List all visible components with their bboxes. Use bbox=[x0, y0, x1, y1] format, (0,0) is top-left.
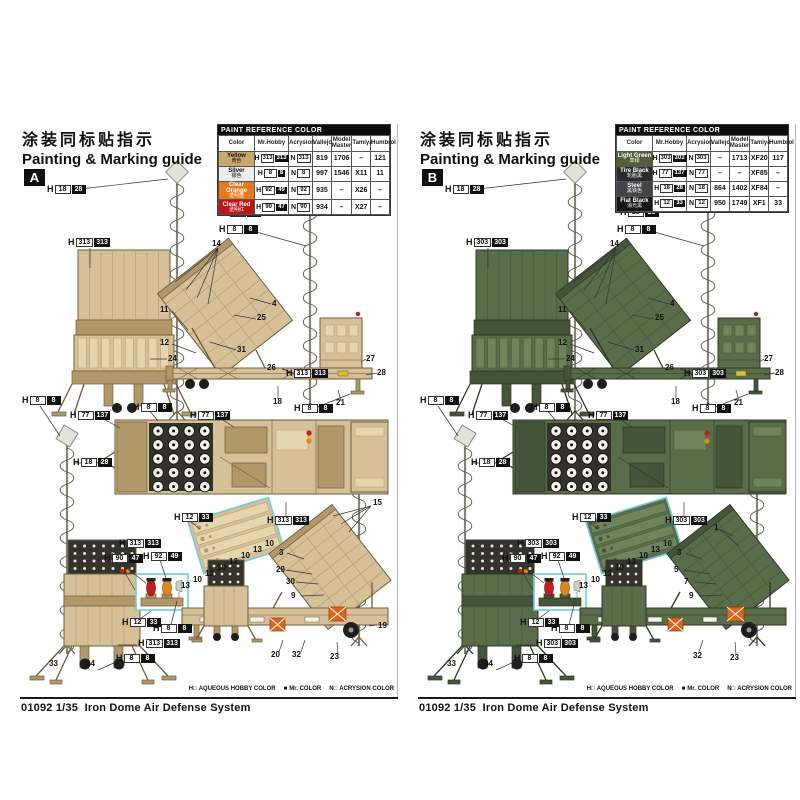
tamiya-cell: XF20 bbox=[750, 151, 769, 166]
title-english: Painting & Marking guide bbox=[420, 151, 600, 168]
paint-row: Flat Black消光黑 H1233 N12 950 1749 XF1 33 bbox=[617, 196, 788, 211]
model-master-cell: – bbox=[331, 200, 352, 215]
tamiya-cell: X26 bbox=[352, 181, 371, 200]
beacon-red-icon bbox=[704, 430, 709, 435]
humbrol-cell: 121 bbox=[371, 151, 390, 166]
mr-hobby-cell: H9249 bbox=[254, 181, 288, 200]
paint-callout: H303303 bbox=[517, 538, 559, 548]
mr-hobby-cell: H88 bbox=[254, 166, 288, 181]
product-scale: 1/35 bbox=[454, 702, 476, 714]
part-number-callout: 27 bbox=[366, 354, 375, 363]
paint-row: Steel黑铁色 H1828 N18 864 1402 XF84 – bbox=[617, 181, 788, 196]
acrysion-cell: N77 bbox=[687, 166, 711, 181]
part-number-callout: 28 bbox=[377, 368, 386, 377]
part-number-callout: 34 bbox=[86, 659, 95, 668]
paint-callout: H88 bbox=[219, 224, 258, 234]
clear-red-lamp-icon bbox=[545, 580, 554, 596]
paint-callout: H313313 bbox=[68, 237, 110, 247]
part-number-callout: 23 bbox=[330, 652, 339, 661]
beacon-red-icon bbox=[306, 430, 311, 435]
product-name: Iron Dome Air Defense System bbox=[483, 702, 649, 714]
humbrol-cell: – bbox=[769, 181, 788, 196]
column-header: Color bbox=[617, 136, 653, 152]
legend-label: AQUEOUS HOBBY COLOR bbox=[199, 686, 276, 692]
paint-callout: H88 bbox=[294, 403, 333, 413]
tamiya-cell: – bbox=[352, 151, 371, 166]
model-master-cell: 1713 bbox=[729, 151, 750, 166]
product-title: 01092 1/35 Iron Dome Air Defense System bbox=[21, 702, 251, 714]
panel-letter: A bbox=[24, 169, 45, 186]
humbrol-cell: 11 bbox=[371, 166, 390, 181]
part-number-callout: 1 bbox=[714, 523, 718, 532]
part-number-callout: 13 bbox=[651, 545, 660, 554]
legend-label: Mr. COLOR bbox=[687, 686, 719, 692]
orange-marker-board-icon bbox=[270, 618, 285, 631]
vallejo-cell: 935 bbox=[313, 181, 332, 200]
paint-callout: H1828 bbox=[445, 184, 484, 194]
product-code: 01092 bbox=[419, 702, 451, 714]
part-number-callout: 13 bbox=[229, 557, 238, 566]
legend-label: ACRYSION COLOR bbox=[339, 686, 394, 692]
panel-title: 涂装同标贴指示 Painting & Marking guide bbox=[420, 126, 600, 168]
title-chinese: 涂装同标贴指示 bbox=[420, 126, 600, 150]
acrysion-cell: N303 bbox=[687, 151, 711, 166]
part-number-callout: 31 bbox=[635, 345, 644, 354]
legend-key: N□ bbox=[329, 686, 337, 692]
paint-row: Clear Orange透明橙 H9249 N92 935 – X26 – bbox=[219, 181, 390, 200]
paint-callout: H88 bbox=[692, 403, 731, 413]
part-number-callout: 13 bbox=[579, 581, 588, 590]
paint-callout: H77137 bbox=[588, 410, 628, 420]
paint-callout: H88 bbox=[617, 224, 656, 234]
truck-top-view bbox=[497, 420, 787, 494]
paint-callout: H9249 bbox=[143, 551, 182, 561]
part-number-callout: 4 bbox=[272, 299, 276, 308]
paint-callout: H9249 bbox=[541, 551, 580, 561]
part-number-callout: 13 bbox=[181, 581, 190, 590]
part-number-callout: 12 bbox=[558, 338, 567, 347]
beacon-orange-icon bbox=[704, 438, 709, 443]
paint-callout: H88 bbox=[551, 623, 590, 633]
guide-panel-b: 涂装同标贴指示 Painting & Marking guide B PAINT… bbox=[418, 122, 796, 722]
part-number-callout: 10 bbox=[639, 551, 648, 560]
acrysion-cell: N12 bbox=[687, 196, 711, 211]
column-header: Color bbox=[219, 136, 255, 152]
column-header: Acrysion bbox=[289, 136, 313, 152]
paint-row: Tire Black轮胎黑 H77137 N77 – – XF85 – bbox=[617, 166, 788, 181]
paint-callout: H313313 bbox=[286, 368, 328, 378]
part-number-callout: 4 bbox=[670, 299, 674, 308]
clear-orange-lamp-icon bbox=[163, 580, 172, 596]
product-title: 01092 1/35 Iron Dome Air Defense System bbox=[419, 702, 649, 714]
paint-callout: H303303 bbox=[684, 368, 726, 378]
mr-hobby-cell: H77137 bbox=[652, 166, 686, 181]
model-master-cell: 1546 bbox=[331, 166, 352, 181]
part-number-callout: 20 bbox=[271, 650, 280, 659]
product-code: 01092 bbox=[21, 702, 53, 714]
orange-marker-board-icon bbox=[668, 618, 683, 631]
vallejo-cell: 997 bbox=[313, 166, 332, 181]
color-swatch-cell: Clear Red透明红 bbox=[219, 200, 255, 215]
instruction-sheet: 涂装同标贴指示 Painting & Marking guide A PAINT… bbox=[0, 0, 800, 800]
part-number-callout: 18 bbox=[671, 397, 680, 406]
paint-reference-table: PAINT REFERENCE COLOR ColorMr.HobbyAcrys… bbox=[217, 124, 391, 216]
part-number-callout: 29 bbox=[276, 565, 285, 574]
legend-key: ■ bbox=[284, 686, 288, 692]
guide-panel-a: 涂装同标贴指示 Painting & Marking guide A PAINT… bbox=[20, 122, 398, 722]
part-number-callout: 9 bbox=[291, 591, 295, 600]
paint-callout: H1828 bbox=[471, 457, 510, 467]
acrysion-cell: N92 bbox=[289, 181, 313, 200]
part-number-callout: 18 bbox=[273, 397, 282, 406]
color-swatch-cell: Clear Orange透明橙 bbox=[219, 181, 255, 200]
paint-callout: H1828 bbox=[73, 457, 112, 467]
paint-callout: H88 bbox=[531, 402, 570, 412]
tamiya-cell: X27 bbox=[352, 200, 371, 215]
part-number-callout: 32 bbox=[693, 651, 702, 660]
column-header: Tamiya bbox=[352, 136, 371, 152]
paint-callout: H88 bbox=[153, 623, 192, 633]
vallejo-cell: 864 bbox=[711, 181, 730, 196]
part-number-callout: 3 bbox=[677, 548, 681, 557]
paint-callout: H77137 bbox=[70, 410, 110, 420]
paint-callout: H1233 bbox=[572, 512, 611, 522]
part-number-callout: 13 bbox=[253, 545, 262, 554]
humbrol-cell: – bbox=[371, 181, 390, 200]
part-number-callout: 23 bbox=[730, 653, 739, 662]
paint-callout: H88 bbox=[420, 395, 459, 405]
model-master-cell: – bbox=[729, 166, 750, 181]
tamiya-cell: X11 bbox=[352, 166, 371, 181]
part-number-callout: 10 bbox=[615, 563, 624, 572]
part-number-callout: 33 bbox=[49, 659, 58, 668]
part-number-callout: 11 bbox=[160, 305, 168, 314]
truck-top-view bbox=[99, 420, 389, 494]
mr-hobby-cell: H303303 bbox=[652, 151, 686, 166]
part-number-callout: 26 bbox=[665, 363, 674, 372]
title-english: Painting & Marking guide bbox=[22, 151, 202, 168]
paint-callout: H9047 bbox=[502, 553, 541, 563]
vallejo-cell: – bbox=[711, 151, 730, 166]
legend-key: N□ bbox=[727, 686, 735, 692]
model-master-cell: 1706 bbox=[331, 151, 352, 166]
paint-callout: H303303 bbox=[536, 638, 578, 648]
column-header: Model Master bbox=[331, 136, 352, 152]
part-number-callout: 13 bbox=[603, 569, 612, 578]
part-number-callout: 21 bbox=[336, 398, 345, 407]
color-swatch-cell: Light Green草绿 bbox=[617, 151, 653, 166]
antenna-panel-icon bbox=[451, 422, 478, 449]
clear-orange-lamp-icon bbox=[561, 580, 570, 596]
table-title: PAINT REFERENCE COLOR bbox=[218, 125, 390, 135]
paint-callout: H1233 bbox=[174, 512, 213, 522]
table-title: PAINT REFERENCE COLOR bbox=[616, 125, 788, 135]
color-swatch-cell: Steel黑铁色 bbox=[617, 181, 653, 196]
part-number-callout: 9 bbox=[689, 591, 693, 600]
product-name: Iron Dome Air Defense System bbox=[85, 702, 251, 714]
column-header: Acrysion bbox=[687, 136, 711, 152]
antenna-panel-icon bbox=[53, 422, 80, 449]
acrysion-cell: N313 bbox=[289, 151, 313, 166]
part-number-callout: 10 bbox=[663, 539, 672, 548]
model-master-cell: 1749 bbox=[729, 196, 750, 211]
part-number-callout: 25 bbox=[655, 313, 664, 322]
orange-marker-board-icon bbox=[727, 607, 744, 621]
column-header: Model Master bbox=[729, 136, 750, 152]
column-header: Vallejo bbox=[711, 136, 730, 152]
paint-callout: H88 bbox=[133, 402, 172, 412]
paint-callout: H1828 bbox=[47, 184, 86, 194]
part-number-callout: 15 bbox=[373, 498, 382, 507]
legend-label: ACRYSION COLOR bbox=[737, 686, 792, 692]
paint-row: Clear Red透明红 H9047 N90 934 – X27 – bbox=[219, 200, 390, 215]
legend-label: Mr. COLOR bbox=[289, 686, 321, 692]
acrysion-cell: N90 bbox=[289, 200, 313, 215]
part-number-callout: 14 bbox=[212, 239, 221, 248]
humbrol-cell: – bbox=[371, 200, 390, 215]
color-swatch-cell: Silver银色 bbox=[219, 166, 255, 181]
mr-hobby-cell: H313313 bbox=[254, 151, 288, 166]
color-swatch-cell: Flat Black消光黑 bbox=[617, 196, 653, 211]
column-header: Humbrol bbox=[769, 136, 788, 152]
part-number-callout: 21 bbox=[734, 398, 743, 407]
legend-label: AQUEOUS HOBBY COLOR bbox=[597, 686, 674, 692]
acrysion-cell: N8 bbox=[289, 166, 313, 181]
part-number-callout: 28 bbox=[775, 368, 784, 377]
part-number-callout: 10 bbox=[591, 575, 600, 584]
paint-callout: H313313 bbox=[138, 638, 180, 648]
legend-key: ■ bbox=[682, 686, 686, 692]
part-number-callout: 10 bbox=[217, 563, 226, 572]
part-number-callout: 34 bbox=[484, 659, 493, 668]
part-number-callout: 10 bbox=[265, 539, 274, 548]
part-number-callout: 13 bbox=[627, 557, 636, 566]
part-number-callout: 31 bbox=[237, 345, 246, 354]
part-number-callout: 24 bbox=[566, 354, 575, 363]
title-chinese: 涂装同标贴指示 bbox=[22, 126, 202, 150]
color-system-legend: H□AQUEOUS HOBBY COLOR■Mr. COLORN□ACRYSIO… bbox=[181, 686, 394, 692]
part-number-callout: 30 bbox=[286, 577, 295, 586]
part-number-callout: 12 bbox=[160, 338, 169, 347]
part-number-callout: 3 bbox=[279, 548, 283, 557]
column-header: Tamiya bbox=[750, 136, 769, 152]
paint-callout: H313313 bbox=[119, 538, 161, 548]
paint-callout: H88 bbox=[514, 653, 553, 663]
part-number-callout: 7 bbox=[684, 577, 688, 586]
color-system-legend: H□AQUEOUS HOBBY COLOR■Mr. COLORN□ACRYSIO… bbox=[579, 686, 792, 692]
clear-red-lamp-icon bbox=[147, 580, 156, 596]
vallejo-cell: 934 bbox=[313, 200, 332, 215]
part-number-callout: 13 bbox=[205, 569, 214, 578]
mr-hobby-cell: H1233 bbox=[652, 196, 686, 211]
part-number-callout: 19 bbox=[378, 621, 387, 630]
paint-row: Light Green草绿 H303303 N303 – 1713 XF20 1… bbox=[617, 151, 788, 166]
legend-key: H□ bbox=[189, 686, 197, 692]
paint-reference-table: PAINT REFERENCE COLOR ColorMr.HobbyAcrys… bbox=[615, 124, 789, 213]
paint-callout: H88 bbox=[116, 653, 155, 663]
model-master-cell: 1402 bbox=[729, 181, 750, 196]
humbrol-cell: 117 bbox=[769, 151, 788, 166]
beacon-detail-inset bbox=[534, 574, 586, 610]
paint-callout: H77137 bbox=[468, 410, 508, 420]
part-number-callout: 27 bbox=[764, 354, 773, 363]
paint-callout: H303303 bbox=[466, 237, 508, 247]
paint-callout: H77137 bbox=[190, 410, 230, 420]
humbrol-cell: – bbox=[769, 166, 788, 181]
part-number-callout: 24 bbox=[168, 354, 177, 363]
column-header: Vallejo bbox=[313, 136, 332, 152]
color-swatch-cell: Yellow黄色 bbox=[219, 151, 255, 166]
tamiya-cell: XF85 bbox=[750, 166, 769, 181]
acrysion-cell: N18 bbox=[687, 181, 711, 196]
generator-unit bbox=[718, 312, 760, 368]
orange-marker-board-icon bbox=[329, 607, 346, 621]
paint-callout: H303303 bbox=[665, 515, 707, 525]
vallejo-cell: – bbox=[711, 166, 730, 181]
part-number-callout: 33 bbox=[447, 659, 456, 668]
generator-unit bbox=[320, 312, 362, 368]
panel-title: 涂装同标贴指示 Painting & Marking guide bbox=[22, 126, 202, 168]
beacon-detail-inset bbox=[136, 574, 188, 610]
color-swatch-cell: Tire Black轮胎黑 bbox=[617, 166, 653, 181]
legend-key: H□ bbox=[587, 686, 595, 692]
beacon-orange-icon bbox=[306, 438, 311, 443]
part-number-callout: 26 bbox=[267, 363, 276, 372]
column-header: Mr.Hobby bbox=[254, 136, 288, 152]
product-scale: 1/35 bbox=[56, 702, 78, 714]
part-number-callout: 11 bbox=[558, 305, 566, 314]
model-master-cell: – bbox=[331, 181, 352, 200]
paint-row: Yellow黄色 H313313 N313 819 1706 – 121 bbox=[219, 151, 390, 166]
part-number-callout: 10 bbox=[193, 575, 202, 584]
part-number-callout: 32 bbox=[292, 650, 301, 659]
tamiya-cell: XF84 bbox=[750, 181, 769, 196]
paint-row: Silver银色 H88 N8 997 1546 X11 11 bbox=[219, 166, 390, 181]
tamiya-cell: XF1 bbox=[750, 196, 769, 211]
panel-letter: B bbox=[422, 169, 443, 186]
vallejo-cell: 819 bbox=[313, 151, 332, 166]
paint-callout: H88 bbox=[22, 395, 61, 405]
vallejo-cell: 950 bbox=[711, 196, 730, 211]
part-number-callout: 5 bbox=[674, 565, 678, 574]
mr-hobby-cell: H9047 bbox=[254, 200, 288, 215]
part-number-callout: 10 bbox=[241, 551, 250, 560]
column-header: Humbrol bbox=[371, 136, 390, 152]
humbrol-cell: 33 bbox=[769, 196, 788, 211]
mr-hobby-cell: H1828 bbox=[652, 181, 686, 196]
paint-callout: H9047 bbox=[104, 553, 143, 563]
part-number-callout: 25 bbox=[257, 313, 266, 322]
paint-callout: H313313 bbox=[267, 515, 309, 525]
part-number-callout: 14 bbox=[610, 239, 619, 248]
column-header: Mr.Hobby bbox=[652, 136, 686, 152]
